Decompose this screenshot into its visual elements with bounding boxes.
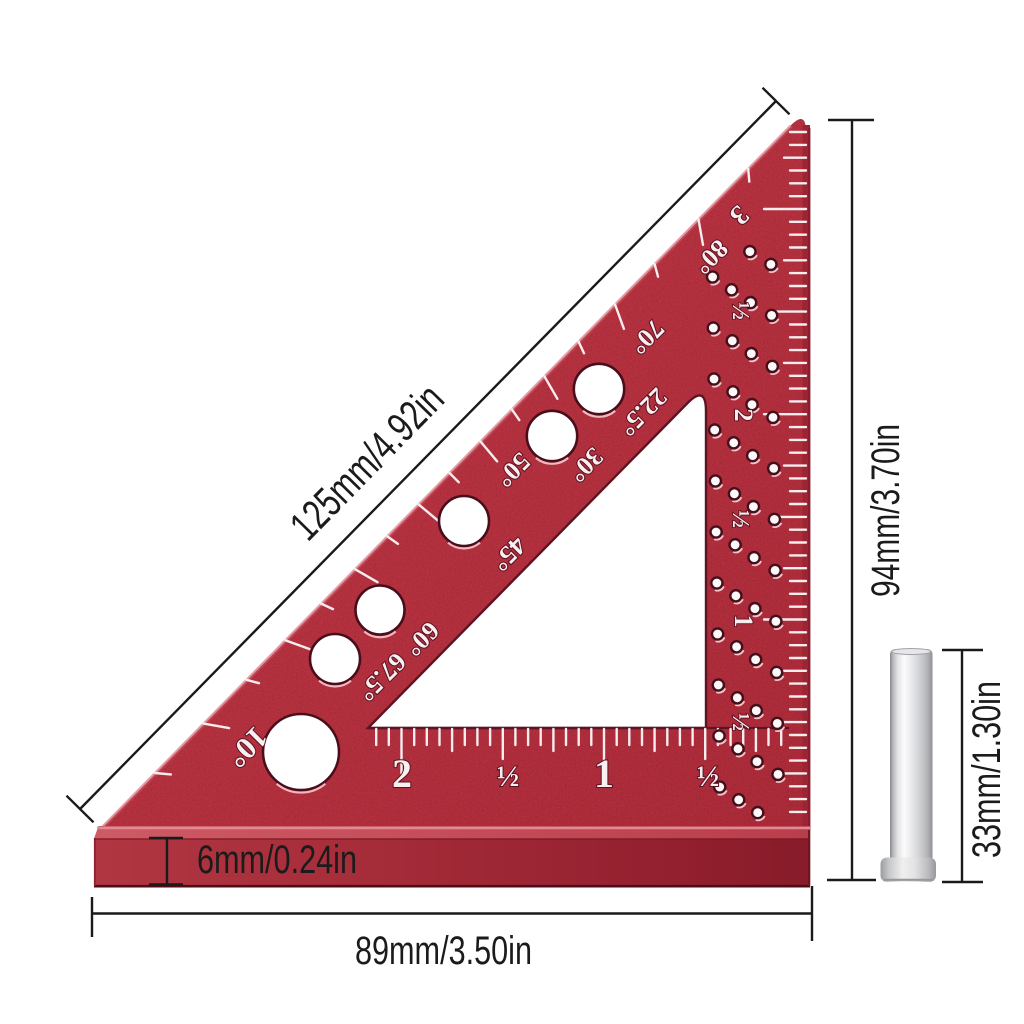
svg-text:½: ½ (727, 302, 753, 320)
svg-text:2: 2 (729, 409, 758, 422)
svg-text:1: 1 (729, 615, 758, 628)
svg-text:1: 1 (594, 751, 614, 796)
svg-text:89mm/3.50in: 89mm/3.50in (355, 929, 532, 973)
svg-text:2: 2 (392, 751, 412, 796)
svg-text:½: ½ (497, 760, 520, 793)
svg-text:½: ½ (697, 760, 720, 793)
svg-text:33mm/1.30in: 33mm/1.30in (965, 681, 1009, 858)
svg-text:½: ½ (727, 510, 753, 528)
svg-text:6mm/0.24in: 6mm/0.24in (197, 838, 357, 882)
svg-text:94mm/3.70in: 94mm/3.70in (864, 424, 908, 597)
svg-text:½: ½ (727, 713, 753, 731)
